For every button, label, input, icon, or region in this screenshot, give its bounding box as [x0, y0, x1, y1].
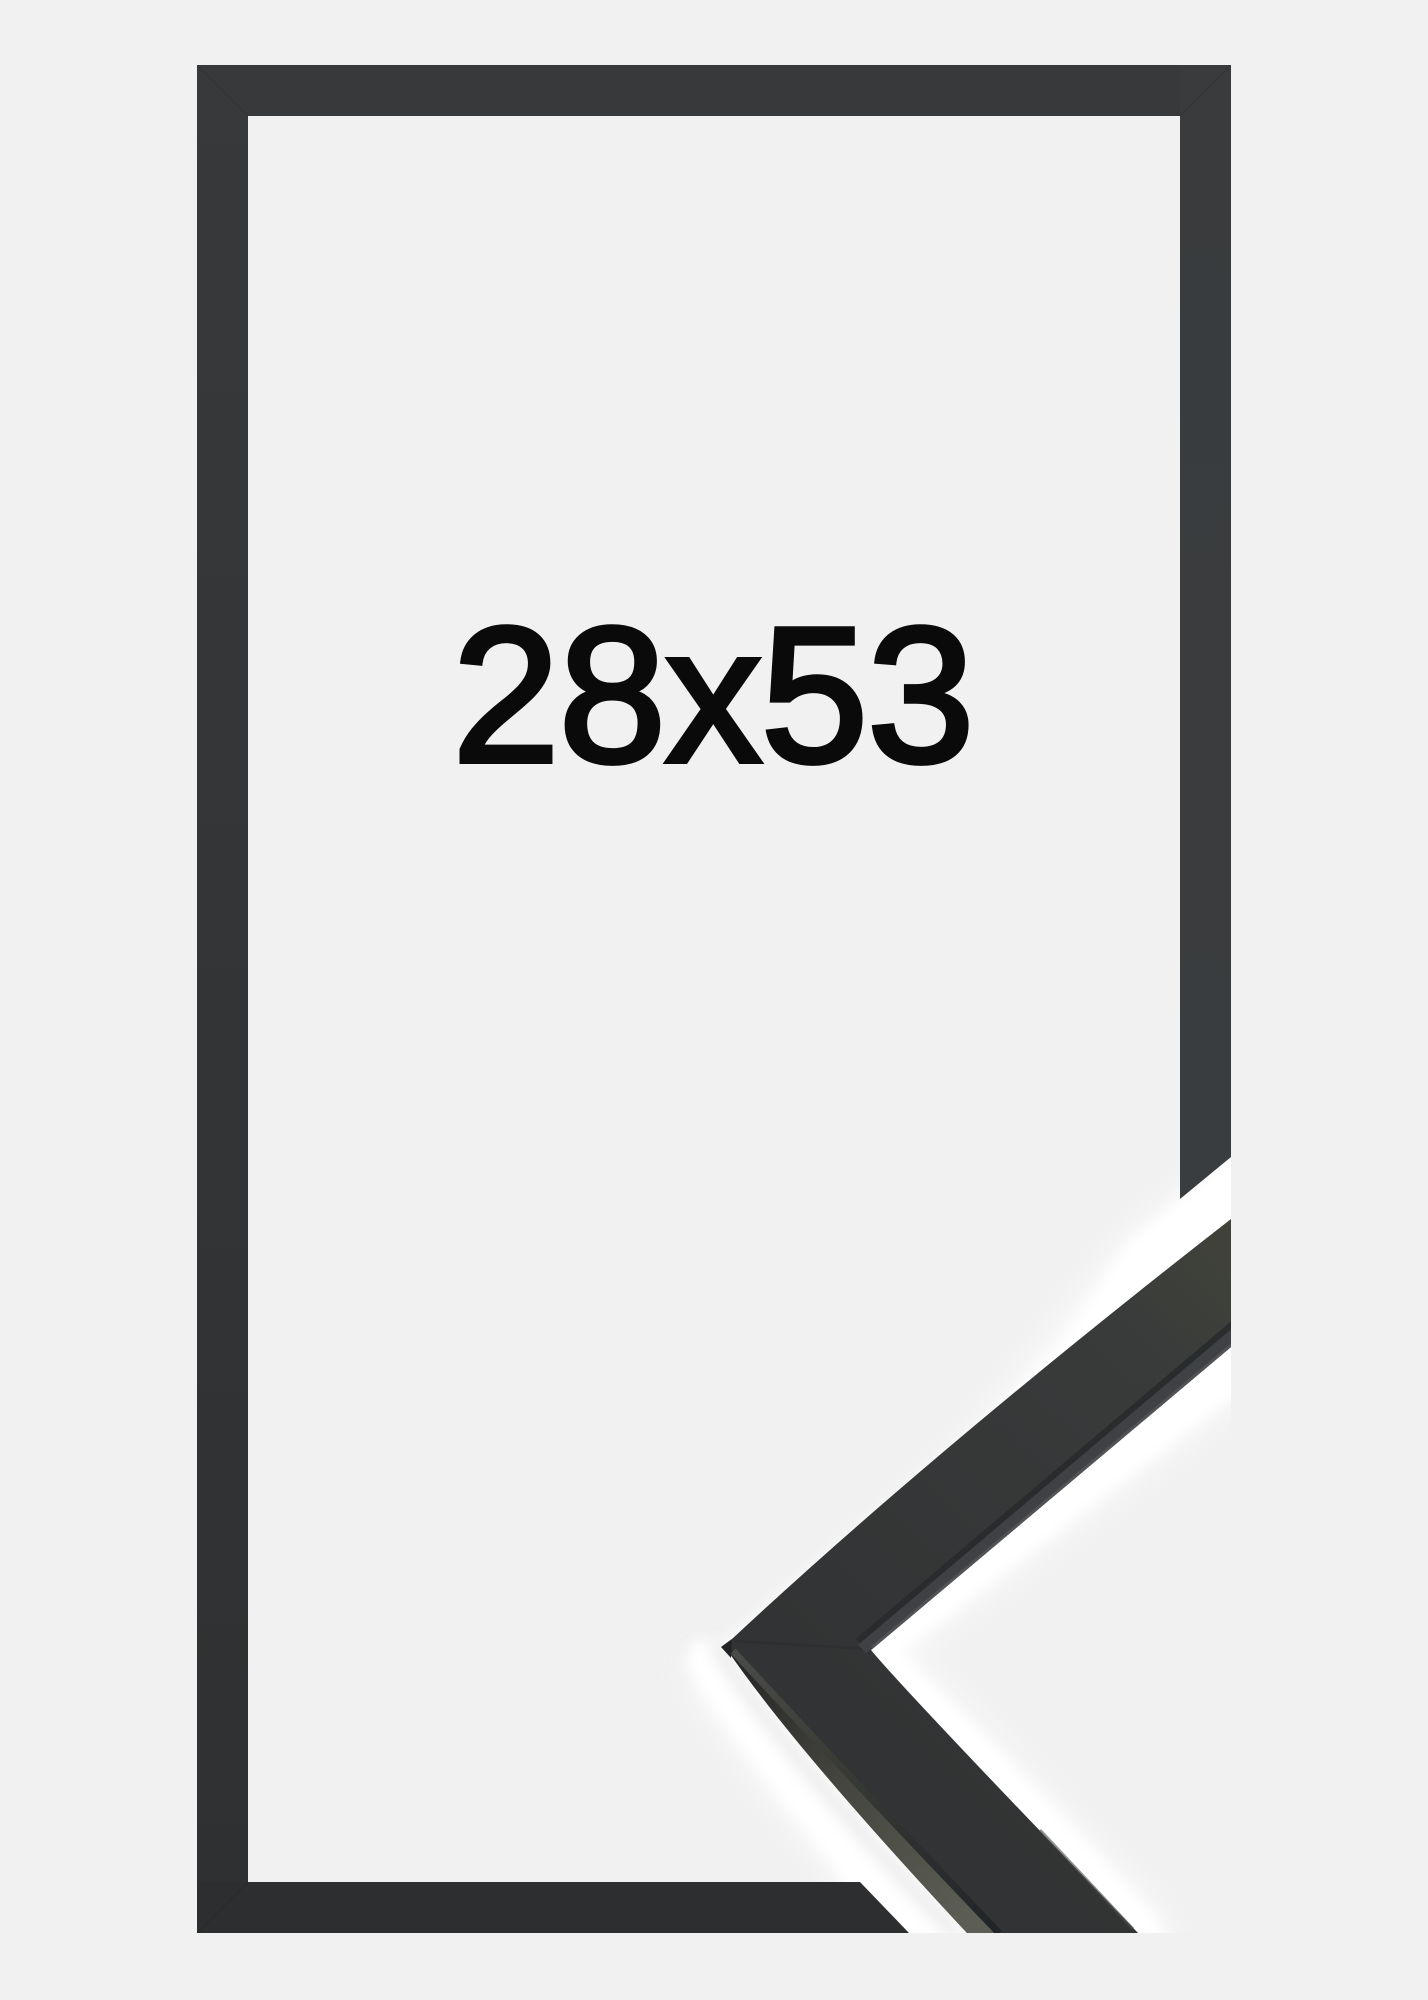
svg-text:28x53: 28x53	[452, 587, 973, 803]
